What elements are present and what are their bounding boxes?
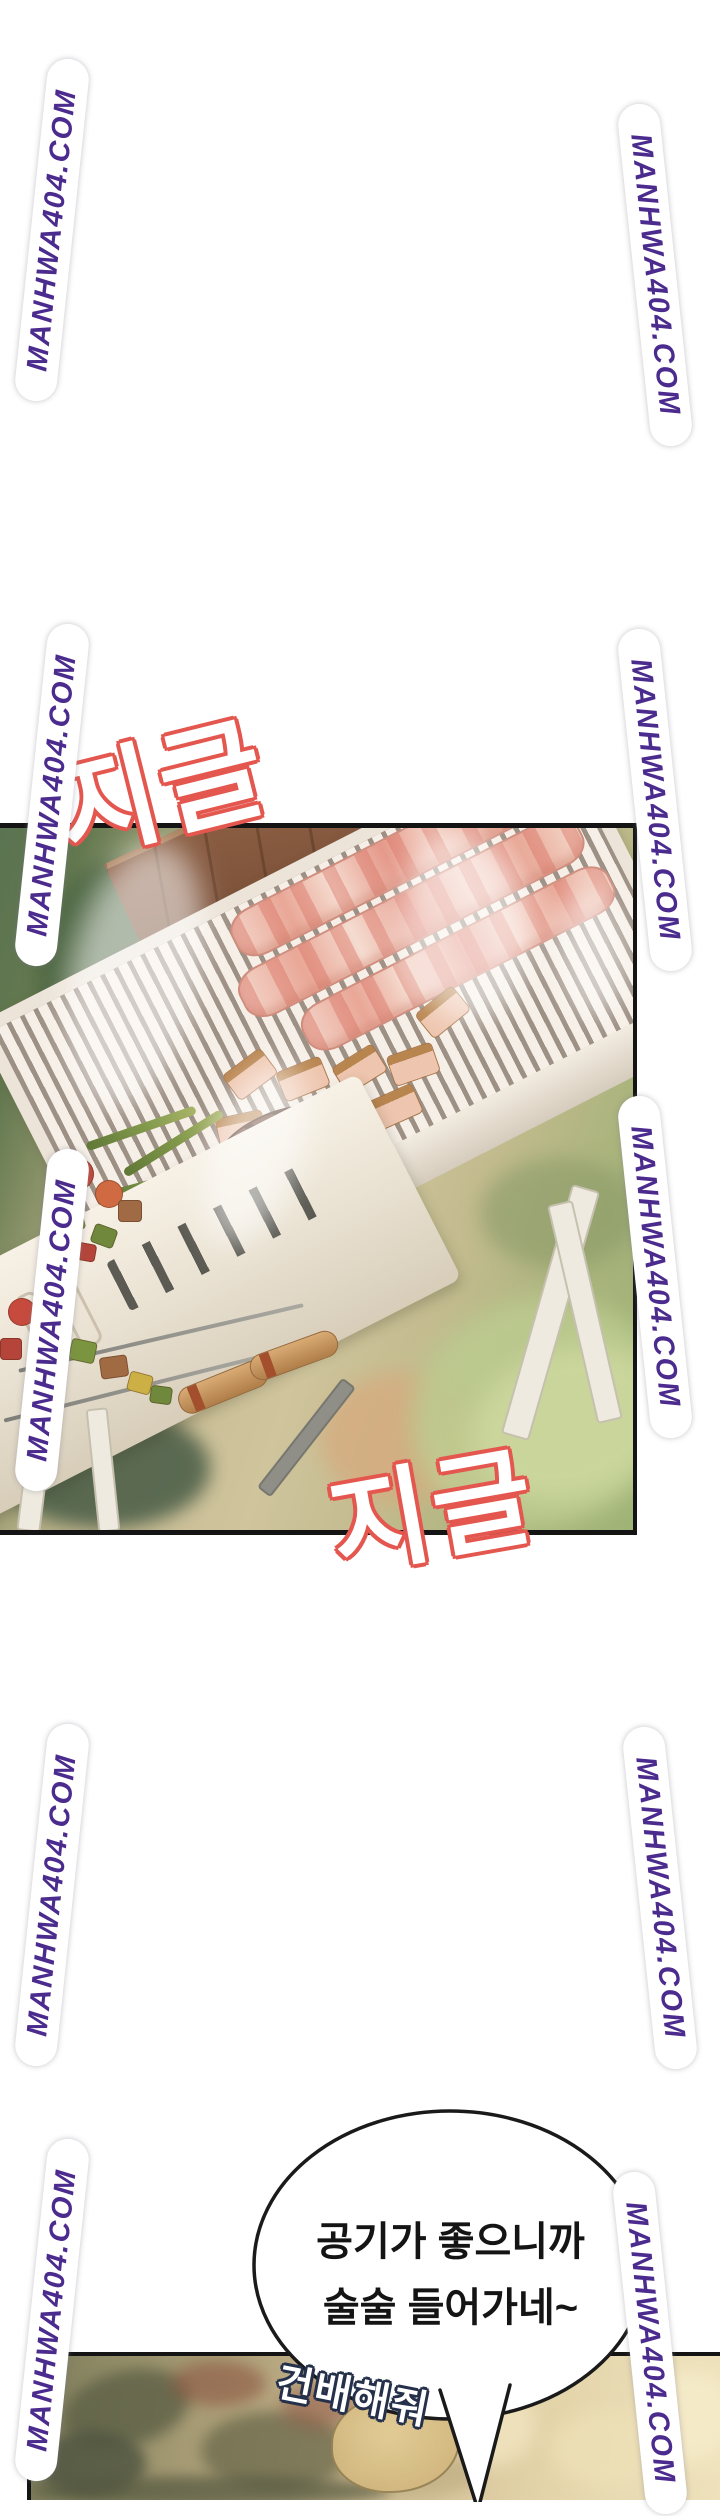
speech-bubble-tail	[440, 2385, 510, 2502]
watermark-text: MANHWA404.COM	[621, 1725, 699, 2072]
skewer-food-piece	[118, 1200, 142, 1222]
green-onion	[85, 1105, 197, 1151]
watermark-text: MANHWA404.COM	[13, 57, 91, 404]
meat-piece	[385, 1041, 441, 1087]
speech-line-2: 술술 들어가네~	[258, 2286, 643, 2330]
skewer-food-piece	[0, 1338, 22, 1360]
skewer-food-piece	[99, 1354, 130, 1380]
speech-line-1: 공기가 좋으니까	[258, 2220, 643, 2264]
sfx-sizzle-bottom: 지글	[323, 1445, 544, 1582]
handle-band	[187, 1384, 206, 1412]
watermark-text: MANHWA404.COM	[13, 1722, 91, 2069]
handle-band	[259, 1352, 277, 1379]
watermark-text: MANHWA404.COM	[616, 102, 694, 449]
skewer-food-piece	[149, 1385, 173, 1406]
webtoon-page: { "page": {"width": 720, "height": 2500,…	[0, 0, 720, 2500]
panel-grill	[0, 823, 637, 1535]
